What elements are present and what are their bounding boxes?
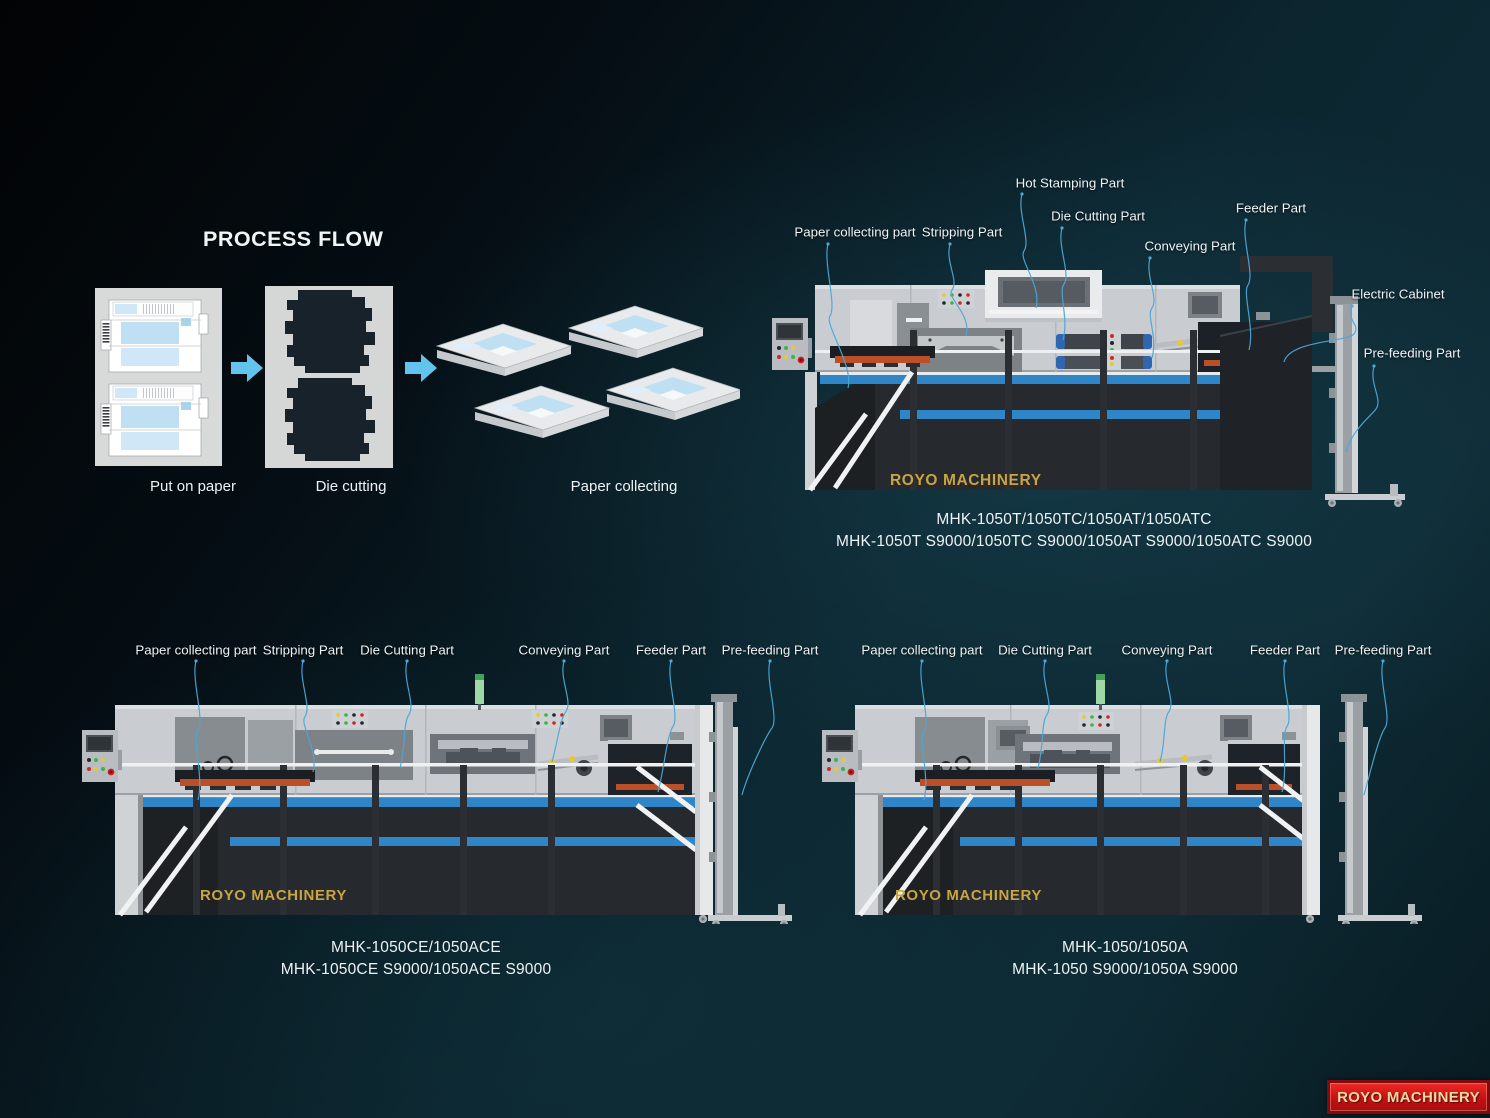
machine-part-label: Pre-feeding Part	[1364, 346, 1461, 361]
royo-machinery-diagram-page: PROCESS FLOW Put on paper Die cutting Pa…	[0, 0, 1490, 1118]
machine-part-label: Die Cutting Part	[998, 643, 1092, 658]
machine-part-label: Feeder Part	[1250, 643, 1320, 658]
machine-brand-label: ROYO MACHINERY	[890, 472, 1042, 489]
machine-part-label: Conveying Part	[1145, 239, 1236, 254]
machine-illustration-mhk1050ce: ROYO MACHINERY	[80, 672, 805, 924]
model-name-line: MHK-1050T S9000/1050TC S9000/1050AT S900…	[836, 533, 1312, 551]
model-name-line: MHK-1050CE S9000/1050ACE S9000	[281, 961, 552, 979]
machine-part-label: Stripping Part	[263, 643, 344, 658]
process-flow-title: PROCESS FLOW	[203, 227, 383, 252]
footer-logo: ROYO MACHINERY	[1327, 1080, 1490, 1114]
machine-part-label: Pre-feeding Part	[722, 643, 819, 658]
machine-part-label: Electric Cabinet	[1351, 287, 1444, 302]
machine-illustration-mhk1050: ROYO MACHINERY	[820, 672, 1435, 924]
machine-part-label: Stripping Part	[922, 225, 1003, 240]
machine-part-label: Paper collecting part	[861, 643, 982, 658]
machine-part-label: Paper collecting part	[135, 643, 256, 658]
machine-brand-label: ROYO MACHINERY	[200, 887, 347, 904]
leader-lines	[0, 0, 1490, 1118]
model-name-line: MHK-1050 S9000/1050A S9000	[1012, 961, 1238, 979]
footer-logo-plate: ROYO MACHINERY	[1330, 1083, 1487, 1111]
flow-step-caption-paper-collecting: Paper collecting	[571, 478, 678, 495]
machine-illustration-mhk1050t: ROYO MACHINERY	[760, 248, 1420, 514]
model-name-line: MHK-1050/1050A	[1062, 939, 1188, 957]
machine-part-label: Die Cutting Part	[360, 643, 454, 658]
footer-logo-text: ROYO MACHINERY	[1337, 1089, 1480, 1106]
machine-part-label: Feeder Part	[636, 643, 706, 658]
machine-part-label: Conveying Part	[519, 643, 610, 658]
machine-part-label: Paper collecting part	[794, 225, 915, 240]
flow-step-caption-put-on-paper: Put on paper	[150, 478, 236, 495]
flow-step-caption-die-cutting: Die cutting	[316, 478, 387, 495]
machine-brand-label: ROYO MACHINERY	[895, 887, 1042, 904]
machine-part-label: Die Cutting Part	[1051, 209, 1145, 224]
machine-part-label: Feeder Part	[1236, 201, 1306, 216]
machine-part-label: Conveying Part	[1122, 643, 1213, 658]
process-flow-illustration	[85, 282, 740, 474]
model-name-line: MHK-1050CE/1050ACE	[331, 939, 501, 957]
model-name-line: MHK-1050T/1050TC/1050AT/1050ATC	[936, 511, 1211, 529]
machine-part-label: Hot Stamping Part	[1016, 176, 1125, 191]
machine-part-label: Pre-feeding Part	[1335, 643, 1432, 658]
